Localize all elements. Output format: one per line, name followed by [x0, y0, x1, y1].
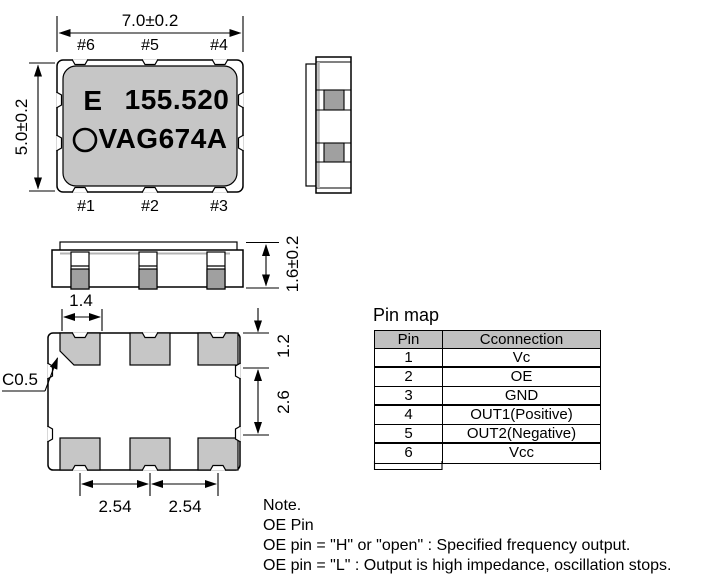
- connection-cell: OE: [443, 368, 600, 386]
- pin-cell: 5: [375, 425, 443, 442]
- pin-label-3: #3: [210, 198, 228, 216]
- bottom-view: [47, 332, 240, 470]
- table-row: 1 Vc: [375, 349, 600, 368]
- pin-cell: 3: [375, 387, 443, 404]
- pin-cell: 4: [375, 406, 443, 424]
- pin-map-title: Pin map: [373, 305, 439, 326]
- pin-label-5: #5: [141, 37, 159, 55]
- note-line-2: OE pin = "L" : Output is high impedance,…: [263, 556, 671, 576]
- connection-cell: GND: [443, 387, 600, 404]
- pin-cell: 2: [375, 368, 443, 386]
- notes-block: Note. OE Pin OE pin = "H" or "open" : Sp…: [263, 496, 671, 576]
- pin-map-header-connection: Cconnection: [443, 331, 600, 348]
- pin-label-1: #1: [77, 198, 95, 216]
- table-row: 4 OUT1(Positive): [375, 406, 600, 425]
- note-title: Note.: [263, 496, 671, 516]
- pin-map-table: Pin Cconnection 1 Vc 2 OE 3 GND 4 OUT1(P…: [374, 330, 601, 464]
- pin-label-6: #6: [77, 37, 95, 55]
- front-view-dimension-lines: [246, 243, 279, 289]
- pin-label-2: #2: [141, 198, 159, 216]
- note-line-1: OE pin = "H" or "open" : Specified frequ…: [263, 536, 671, 556]
- marking-frequency: 155.520: [125, 84, 230, 116]
- dim-pitch-right: 2.54: [168, 497, 201, 517]
- connection-cell: OUT1(Positive): [443, 406, 600, 424]
- table-row: 3 GND: [375, 387, 600, 406]
- technical-drawing-page: 7.0±0.2 5.0±0.2 #6 #5 #4 #1 #2 #3 E 155.…: [0, 0, 718, 585]
- table-row: 2 OE: [375, 368, 600, 387]
- marking-grade: E: [83, 85, 102, 117]
- dim-body-height: 5.0±0.2: [12, 99, 32, 156]
- marking-model: VAG674A: [98, 123, 227, 155]
- dim-body-width: 7.0±0.2: [122, 11, 179, 31]
- dim-chamfer: C0.5: [2, 370, 38, 390]
- side-view: [306, 57, 351, 193]
- dim-pad-width: 1.4: [69, 291, 93, 311]
- pin-cell: 6: [375, 444, 443, 463]
- dim-thickness: 1.6±0.2: [283, 236, 303, 293]
- connection-cell: OUT2(Negative): [443, 425, 600, 442]
- dim-pitch-left: 2.54: [98, 497, 131, 517]
- front-view: [52, 242, 243, 289]
- table-row: 6 Vcc: [375, 444, 600, 463]
- connection-cell: Vcc: [443, 444, 600, 463]
- connection-cell: Vc: [443, 349, 600, 366]
- pin-cell: 1: [375, 349, 443, 366]
- pin-map-header-pin: Pin: [375, 331, 443, 348]
- dim-row-gap: 2.6: [274, 390, 294, 414]
- note-subtitle: OE Pin: [263, 516, 671, 536]
- pin-label-4: #4: [210, 37, 228, 55]
- pin-map-header-row: Pin Cconnection: [375, 331, 600, 349]
- dim-pad-height: 1.2: [274, 334, 294, 358]
- table-row: 5 OUT2(Negative): [375, 425, 600, 444]
